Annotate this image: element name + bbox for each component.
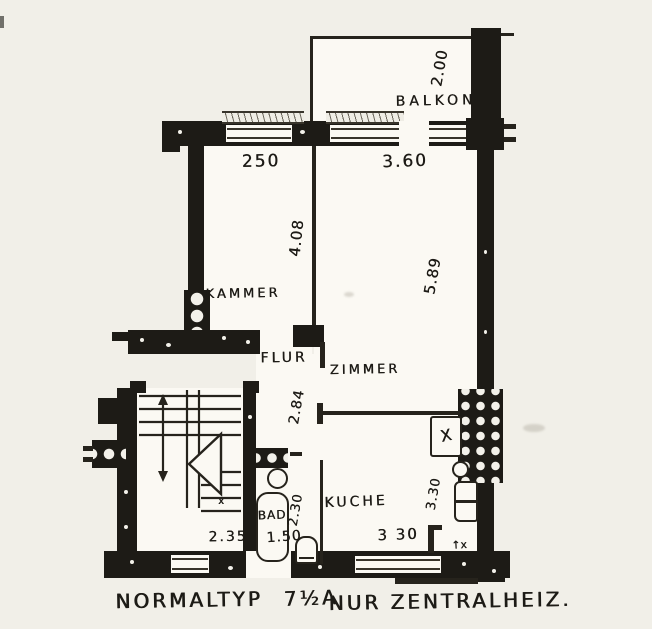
wall-speck	[124, 525, 128, 529]
balcony-wall-left	[310, 36, 313, 124]
neighbor-wall-tick	[501, 33, 514, 36]
dim-kammer-length: 4.08	[288, 219, 307, 258]
washbasin	[267, 468, 288, 489]
wall-right-upper	[477, 146, 494, 389]
wall-speck	[166, 343, 171, 347]
wall-zimmer-kueche-cap	[317, 403, 323, 424]
floor-plan-sheet: BALKON KAMMER FLUR ZIMMER KUCHE BAD 2.00…	[0, 0, 652, 629]
wall-kammer-horizontal	[128, 330, 260, 354]
room-label-zimmer: ZIMMER	[330, 363, 401, 377]
bad-door-pier	[256, 448, 288, 468]
room-label-bad: BAD	[257, 509, 286, 522]
wall-zimmer-kueche	[322, 411, 460, 415]
stair-direction-mark: x	[218, 497, 224, 507]
dim-kueche-width: 3 30	[377, 527, 419, 543]
window-zimmer-right	[428, 125, 468, 142]
flur-door-stub	[320, 342, 325, 368]
wall-stair-right	[243, 388, 256, 551]
entrance-pier-left	[92, 440, 126, 468]
wall-speck	[318, 565, 322, 569]
wall-speck	[140, 338, 144, 342]
entrance-tick-1	[83, 446, 93, 451]
junction-tick-1	[504, 124, 516, 129]
wall-speck	[124, 490, 128, 494]
wall-speck	[484, 250, 487, 254]
wall-speck	[246, 340, 250, 344]
wall-top-left-lip	[162, 146, 180, 152]
wall-speck	[222, 336, 226, 340]
wall-kammer-left-notch	[112, 332, 129, 341]
wall-speck	[492, 569, 496, 573]
wall-speck	[130, 560, 134, 564]
room-label-flur: FLUR	[260, 351, 307, 366]
balcony-pier-right	[471, 28, 501, 125]
stair-top-right-nub	[243, 381, 259, 393]
kitchen-sink-upper	[454, 481, 478, 502]
partition-kammer-zimmer	[312, 146, 316, 330]
wall-speck	[300, 130, 305, 134]
window-sill-left	[222, 111, 304, 124]
entrance-tick-2	[83, 457, 93, 462]
window-kammer	[226, 125, 292, 142]
caption-type-label: NORMALTYP	[115, 589, 263, 612]
dim-balkon-width: 3.60	[382, 153, 428, 172]
wall-speck	[228, 566, 233, 570]
scan-smudge	[523, 424, 545, 432]
dim-stairroom-width: 2.35	[208, 530, 247, 545]
wall-stair-left-tab	[98, 398, 120, 424]
scan-edge-mark	[0, 16, 4, 28]
window-kueche	[355, 556, 441, 573]
room-label-kueche: KUCHE	[324, 494, 388, 510]
room-label-kammer: KAMMER	[205, 287, 280, 301]
vent-mark: ↑x	[451, 539, 467, 551]
window-sill-middle	[326, 111, 404, 124]
window-zimmer-left	[330, 125, 400, 142]
dim-kammer-width: 250	[242, 153, 281, 171]
bathtub	[256, 492, 289, 562]
dim-bad-width: 1.50	[266, 529, 302, 545]
balcony-wall-top	[310, 36, 480, 39]
wall-speck	[484, 330, 487, 334]
kitchen-circle-fixture	[452, 461, 469, 478]
window-stairroom	[171, 555, 209, 573]
staircase-drawing	[137, 388, 243, 551]
wall-bad-kueche	[320, 460, 323, 564]
caption-note: NUR ZENTRALHEIZ.	[328, 589, 571, 613]
scan-smudge	[344, 292, 354, 297]
bad-door-tick	[290, 452, 302, 456]
wall-speck	[248, 415, 252, 419]
wall-bottom-lip	[395, 578, 478, 584]
wall-speck	[462, 562, 466, 566]
room-label-balkon: BALKON	[395, 93, 476, 108]
junction-tick-2	[504, 137, 516, 142]
wall-speck	[178, 130, 182, 134]
balcony-door-opening	[399, 121, 429, 146]
kitchen-sink-lower	[454, 501, 478, 522]
vent-niche-nub	[428, 525, 442, 530]
